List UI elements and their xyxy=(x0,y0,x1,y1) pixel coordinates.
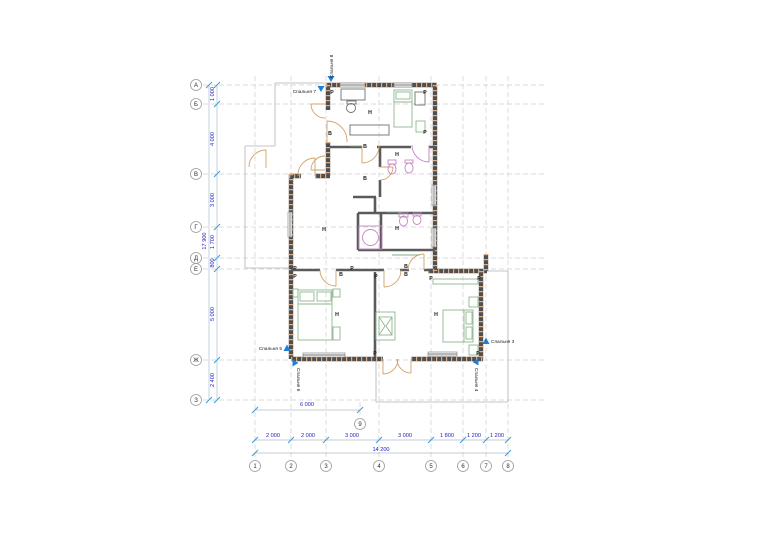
room-letter-Р: Р xyxy=(373,351,377,357)
shower xyxy=(359,226,382,249)
room-letter-Р: Р xyxy=(350,266,354,272)
dim-text-bottom-upper: 6 000 xyxy=(300,402,314,408)
grid-lines xyxy=(203,76,545,459)
room-letter-Н: Н xyxy=(395,152,399,158)
room-letter-Р: Р xyxy=(374,274,378,280)
chair xyxy=(347,104,356,113)
bidet-2 xyxy=(413,213,421,225)
axis-label-row: Д xyxy=(194,256,198,262)
dim-text-left: 3 000 xyxy=(210,193,216,207)
dim-text-bottom: 2 000 xyxy=(266,433,280,439)
dim-text-bottom: 1 200 xyxy=(490,433,504,439)
doors xyxy=(249,104,429,374)
spalnya-7-label: Спальня 7 xyxy=(293,89,317,95)
room-letter-Н: Н xyxy=(434,312,438,318)
bathroom-fixtures xyxy=(359,160,421,249)
drawing-canvas: 1 0004 0003 0001 7008005 0002 40017 9002… xyxy=(0,0,759,537)
desk xyxy=(341,89,365,100)
room-letter-В: В xyxy=(339,272,343,278)
room-letter-Р: Р xyxy=(330,90,334,96)
dim-text-left-total: 17 900 xyxy=(202,232,208,249)
room-letter-В: В xyxy=(363,176,367,182)
room-letter-Р: Р xyxy=(423,130,427,136)
bed-bottom-right xyxy=(433,279,478,355)
axis-label-row: В xyxy=(194,172,198,178)
dim-text-bottom-total: 14 200 xyxy=(372,447,389,453)
dim-text-bottom: 2 000 xyxy=(301,433,315,439)
spalnya-5-label: Спальня 5 xyxy=(259,346,283,352)
dim-text-left: 1 700 xyxy=(210,235,216,249)
room-letter-В: В xyxy=(328,131,332,137)
sideboard xyxy=(350,125,389,135)
room-markers: Спальня 8Спальня 7Спальня 5Спальня 6Спал… xyxy=(259,54,515,391)
dim-text-bottom: 1 800 xyxy=(440,433,454,439)
room-letter-Н: Н xyxy=(322,227,326,233)
exterior-walls xyxy=(289,85,487,359)
spalnya-3-arrow-icon xyxy=(483,338,490,345)
room-letter-Р: Р xyxy=(293,274,297,280)
room-letter-Н: Н xyxy=(368,110,372,116)
dim-text-left: 5 000 xyxy=(210,307,216,321)
dim-text-left: 1 000 xyxy=(210,87,216,101)
axis-label-row: А xyxy=(194,83,198,89)
spalnya-7-arrow-icon xyxy=(318,86,325,92)
floor-plan: 1 0004 0003 0001 7008005 0002 40017 9002… xyxy=(0,0,759,537)
dim-text-bottom: 3 000 xyxy=(345,433,359,439)
room-letter-Н: Н xyxy=(335,312,339,318)
room-letter-В: В xyxy=(404,272,408,278)
axis-label-row: Ж xyxy=(193,358,199,364)
room-letter-Р: Р xyxy=(476,351,480,357)
room-letter-В: В xyxy=(404,264,408,270)
room-letter-Н: Н xyxy=(395,226,399,232)
bed-top xyxy=(394,90,412,127)
room-letter-Р: Р xyxy=(429,276,433,282)
axis-label-row: Б xyxy=(194,102,198,108)
room-letter-Р: Р xyxy=(477,276,481,282)
axis-label-row: З xyxy=(194,398,198,404)
spalnya-8-label: Спальня 8 xyxy=(329,54,335,78)
dim-text-left: 2 400 xyxy=(210,373,216,387)
dim-text-bottom: 3 000 xyxy=(398,433,412,439)
room-letter-Р: Р xyxy=(293,266,297,272)
room-letter-В: В xyxy=(363,144,367,150)
spalnya-4-label: Спальня 4 xyxy=(473,368,479,392)
windows xyxy=(288,83,457,357)
axis-bubbles: АБВГДЕЖЗ123456789 xyxy=(191,80,514,472)
dim-text-bottom: 1 200 xyxy=(467,433,481,439)
spalnya-3-label: Спальня 3 xyxy=(491,339,515,345)
bed-bottom-left xyxy=(293,289,340,340)
spalnya-6-label: Спальня 6 xyxy=(295,368,301,392)
furniture xyxy=(293,89,478,355)
bidet xyxy=(405,160,413,173)
dim-text-left: 800 xyxy=(210,258,216,267)
toilet-2 xyxy=(399,213,408,226)
room-letter-Р: Р xyxy=(423,90,427,96)
dim-text-left: 4 000 xyxy=(210,132,216,146)
axis-label-row: Е xyxy=(194,267,198,273)
